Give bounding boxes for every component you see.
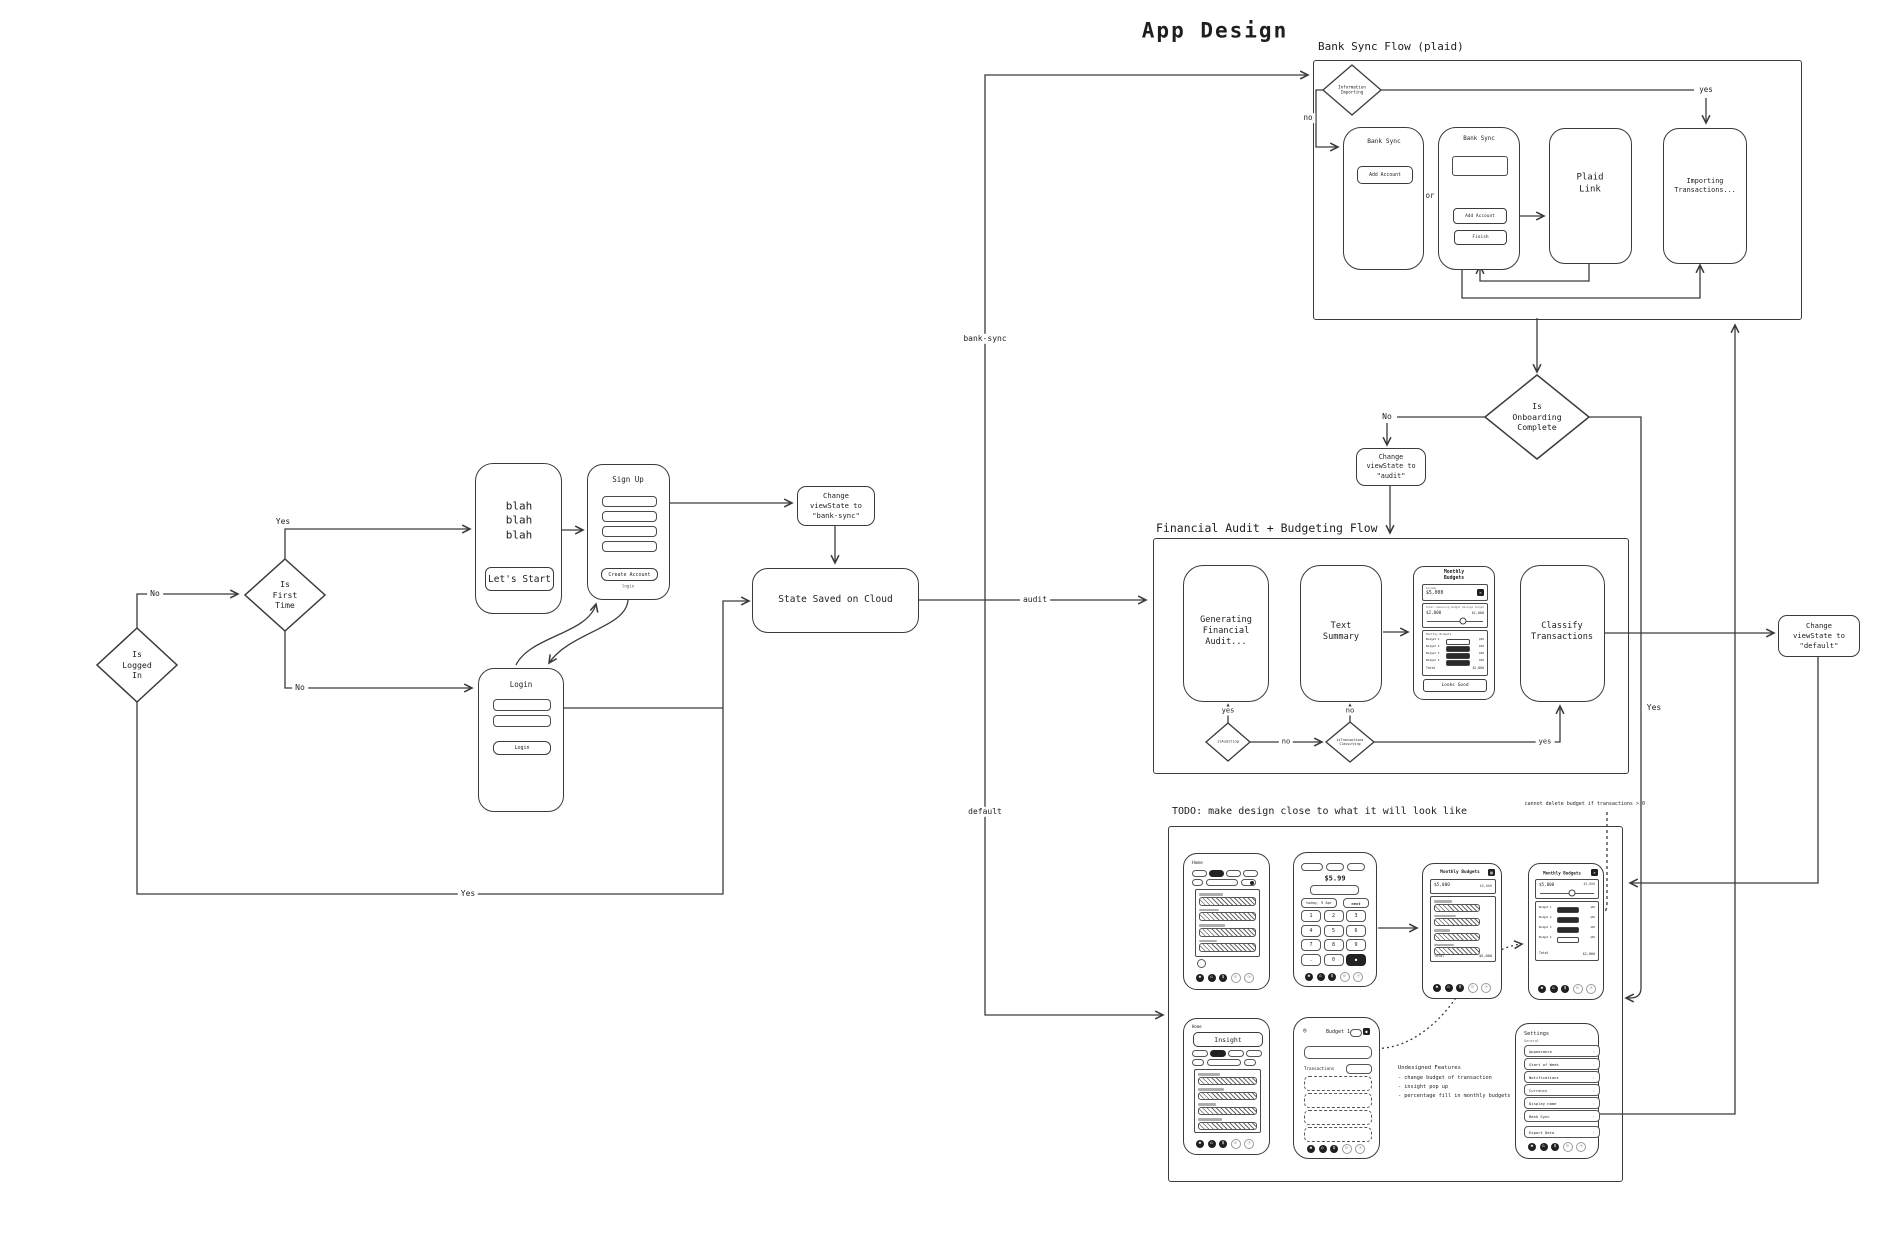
or-label: or bbox=[1425, 191, 1434, 201]
auditing-no-label: no bbox=[1279, 737, 1293, 746]
home-mockup-phone[interactable]: Home ✱ ⌂ $ ⚙ ◔ bbox=[1183, 853, 1270, 990]
total-value: $2,000 bbox=[1583, 952, 1595, 956]
welcome-text: blah blah blah bbox=[506, 500, 533, 543]
is-classifying-label: isTransactions Classifying bbox=[1337, 738, 1364, 746]
list-caption bbox=[1199, 940, 1217, 943]
text-summary-label: Text Summary bbox=[1323, 621, 1359, 643]
banksync-a-title: Bank Sync bbox=[1367, 138, 1401, 146]
insight-pill[interactable]: Insight bbox=[1193, 1032, 1263, 1047]
monthly-title: Monthly Budgets bbox=[1434, 570, 1474, 582]
plaid-link-phone[interactable]: Plaid Link bbox=[1549, 128, 1632, 264]
bottom-nav: ✱ ⌂ $ ⚙ ◔ bbox=[1528, 1142, 1586, 1152]
keypad-pill-row[interactable] bbox=[1301, 863, 1365, 871]
next-pill[interactable]: next bbox=[1343, 898, 1369, 908]
nav-icon-apps[interactable]: ✱ bbox=[1538, 985, 1546, 993]
nav-icon-home[interactable]: ⌂ bbox=[1317, 973, 1325, 981]
nav-icon-settings[interactable]: ⚙ bbox=[1573, 984, 1583, 994]
nav-icon-settings[interactable]: ⚙ bbox=[1342, 1144, 1352, 1154]
category-pill[interactable] bbox=[1326, 863, 1344, 871]
loggedin-yes-label: Yes bbox=[458, 889, 478, 899]
settings-item-label: Start of Week bbox=[1529, 1062, 1559, 1067]
todo-note: cannot delete budget if transactions > 0 bbox=[1500, 801, 1645, 807]
nav-icon-budget[interactable]: $ bbox=[1330, 1145, 1338, 1153]
nav-icon-more[interactable]: ◔ bbox=[1586, 984, 1596, 994]
settings-item-label: Appearance bbox=[1529, 1049, 1552, 1054]
budget-summary-pill[interactable] bbox=[1304, 1046, 1372, 1059]
edit-pill[interactable] bbox=[1350, 1029, 1362, 1037]
budget-row-amount: $50 bbox=[1590, 936, 1595, 939]
income-secondary: $5,000 bbox=[1480, 884, 1492, 888]
budget-row-amount: $50 bbox=[1479, 645, 1484, 648]
insight-mockup-phone[interactable]: Home Insight ✱ ⌂ $ ⚙ ◔ bbox=[1183, 1018, 1270, 1155]
chevron-right-icon: › bbox=[1593, 1101, 1595, 1106]
budget-row-bar bbox=[1557, 937, 1579, 943]
login-field-2[interactable] bbox=[493, 715, 551, 727]
export-icon[interactable]: ▨ bbox=[1488, 869, 1495, 876]
budget-row-bar bbox=[1446, 639, 1470, 645]
remaining-box: Total remaining budget Savings target $2… bbox=[1422, 603, 1488, 628]
key-7[interactable]: 7 bbox=[1301, 939, 1321, 951]
income-box: $5,000 $5,000 bbox=[1430, 879, 1496, 894]
see-all-pill[interactable] bbox=[1346, 1064, 1372, 1074]
chevron-right-icon: › bbox=[1593, 1075, 1595, 1080]
tab-pill[interactable] bbox=[1226, 870, 1241, 877]
back-icon[interactable]: ◎ bbox=[1303, 1027, 1307, 1034]
placeholder-transaction bbox=[1304, 1093, 1372, 1108]
amount-display: $5.99 bbox=[1324, 874, 1345, 883]
welcome-phone[interactable]: blah blah blah Let's Start bbox=[475, 463, 562, 614]
nav-icon-apps[interactable]: ✱ bbox=[1305, 973, 1313, 981]
tab-pill-active[interactable] bbox=[1209, 870, 1224, 877]
transaction-row[interactable] bbox=[1199, 912, 1256, 921]
budget-row-label: Budget 2 bbox=[1426, 645, 1439, 648]
home-filter-row[interactable] bbox=[1192, 879, 1256, 886]
budget-list-box: Budget 1 $50 Budget 2 $50 Budget 3 $50 B… bbox=[1535, 901, 1599, 961]
branch-label-default: default bbox=[965, 807, 1005, 817]
budget-row-bar bbox=[1557, 907, 1579, 913]
total-value: $5,000 bbox=[1479, 954, 1492, 958]
budget-row[interactable] bbox=[1434, 918, 1480, 926]
budget-row-amount: $50 bbox=[1590, 906, 1595, 909]
transaction-row[interactable] bbox=[1199, 897, 1256, 906]
insight-row[interactable] bbox=[1198, 1107, 1257, 1116]
branch-label-banksync: bank-sync bbox=[960, 334, 1009, 344]
nav-icon-more[interactable]: ◔ bbox=[1576, 1142, 1586, 1152]
todo-title: TODO: make design close to what it will … bbox=[1172, 806, 1467, 817]
category-pill[interactable] bbox=[1347, 863, 1365, 871]
signup-field-2[interactable] bbox=[602, 511, 657, 522]
budget-row-bar bbox=[1557, 927, 1579, 933]
settings-section-label: General bbox=[1524, 1039, 1539, 1043]
fab-circle[interactable] bbox=[1197, 959, 1206, 968]
nav-icon-settings[interactable]: ⚙ bbox=[1468, 983, 1478, 993]
loggedin-no-label: No bbox=[147, 589, 163, 599]
branch-label-audit: audit bbox=[1020, 595, 1050, 605]
key-5[interactable]: 5 bbox=[1324, 925, 1344, 937]
tab-pill-active[interactable] bbox=[1210, 1050, 1226, 1057]
banksync-b-account-box[interactable] bbox=[1452, 156, 1508, 176]
banksync-phone-b[interactable]: Bank Sync Add Account Finish bbox=[1438, 127, 1520, 270]
add-account-button-b[interactable]: Add Account bbox=[1453, 208, 1507, 224]
budget-row-label: Budget 3 bbox=[1426, 652, 1439, 655]
settings-item-appearance[interactable]: Appearance› bbox=[1524, 1045, 1600, 1057]
home-label: Home bbox=[1192, 861, 1203, 866]
total-label: Total bbox=[1434, 954, 1444, 958]
importing-label: Importing Transactions... bbox=[1674, 177, 1735, 195]
banksync-yes-label: yes bbox=[1696, 85, 1716, 95]
nav-icon-budget[interactable]: $ bbox=[1561, 985, 1569, 993]
budget-row-bar bbox=[1446, 653, 1470, 659]
financial-flow-title: Financial Audit + Budgeting Flow bbox=[1156, 521, 1378, 535]
tab-pill[interactable] bbox=[1192, 1050, 1208, 1057]
nav-icon-settings[interactable]: ⚙ bbox=[1231, 973, 1241, 983]
tab-pill[interactable] bbox=[1228, 1050, 1244, 1057]
finish-button[interactable]: Finish bbox=[1454, 230, 1507, 245]
signup-title: Sign Up bbox=[612, 475, 644, 485]
firsttime-yes-label: Yes bbox=[273, 517, 293, 527]
settings-mockup-phone[interactable]: Settings General Appearance› Start of We… bbox=[1515, 1023, 1599, 1159]
nav-icon-apps[interactable]: ✱ bbox=[1433, 984, 1441, 992]
key-9[interactable]: 9 bbox=[1346, 939, 1366, 951]
placeholder-transaction bbox=[1304, 1110, 1372, 1125]
list-caption bbox=[1199, 924, 1225, 927]
bottom-nav: ✱ ⌂ $ ⚙ ◔ bbox=[1196, 1139, 1254, 1149]
settings-item-export-data[interactable]: Export Data› bbox=[1524, 1126, 1600, 1138]
nav-icon-apps[interactable]: ✱ bbox=[1196, 974, 1204, 982]
state-saved-node[interactable]: State Saved on Cloud bbox=[752, 568, 919, 633]
insight-row[interactable] bbox=[1198, 1092, 1257, 1101]
undesigned-item: - insight pop up bbox=[1398, 1083, 1528, 1092]
budget-row-label: Budget 1 bbox=[1426, 638, 1439, 641]
date-pill[interactable]: today, 9 Apr bbox=[1301, 898, 1337, 908]
settings-item-start-of-week[interactable]: Start of Week› bbox=[1524, 1058, 1600, 1070]
undesigned-item: - change budget of transaction bbox=[1398, 1074, 1528, 1083]
connector-signup-login[interactable] bbox=[549, 600, 628, 663]
insight-nav-row[interactable] bbox=[1192, 1059, 1256, 1066]
looks-good-button[interactable]: Looks Good bbox=[1423, 679, 1487, 692]
nav-icon-home[interactable]: ⌂ bbox=[1208, 1140, 1216, 1148]
home-tab-row[interactable] bbox=[1192, 870, 1258, 877]
list-caption bbox=[1198, 1103, 1216, 1106]
tab-pill[interactable] bbox=[1246, 1050, 1262, 1057]
bottom-nav: ✱ ⌂ $ ⚙ ◔ bbox=[1307, 1144, 1365, 1154]
key-4[interactable]: 4 bbox=[1301, 925, 1321, 937]
transaction-row[interactable] bbox=[1199, 928, 1256, 937]
prev-pill[interactable] bbox=[1192, 1059, 1204, 1066]
page-title: App Design bbox=[1142, 17, 1288, 44]
budget-row-label: Budget 4 bbox=[1426, 659, 1439, 662]
tab-pill[interactable] bbox=[1192, 870, 1207, 877]
list-caption bbox=[1199, 893, 1223, 896]
key-2[interactable]: 2 bbox=[1324, 910, 1344, 922]
is-auditing-label: isAuditing bbox=[1217, 740, 1239, 745]
add-account-button-a[interactable]: Add Account bbox=[1357, 166, 1413, 184]
income-box: $5,000 $5,000 bbox=[1535, 879, 1599, 899]
budget-slider[interactable] bbox=[1540, 893, 1594, 894]
budget-list-box: Monthly Budgets Budget 1 $50 Budget 2 $5… bbox=[1422, 630, 1488, 676]
budget-list-box: Total $5,000 bbox=[1430, 896, 1496, 962]
income-box: Income $5,000 ✕ bbox=[1422, 584, 1488, 601]
insight-row[interactable] bbox=[1198, 1122, 1257, 1131]
slider-knob[interactable] bbox=[1569, 890, 1576, 897]
banksync-flow-title: Bank Sync Flow (plaid) bbox=[1318, 40, 1464, 53]
settings-title: Settings bbox=[1524, 1031, 1549, 1037]
insight-list[interactable] bbox=[1194, 1069, 1261, 1133]
key-6[interactable]: 6 bbox=[1346, 925, 1366, 937]
signup-phone[interactable]: Sign Up Create Account login bbox=[587, 464, 670, 600]
bottom-nav: ✱ ⌂ $ ⚙ ◔ bbox=[1305, 972, 1363, 982]
monthly-budgets-phone[interactable]: Monthly Budgets Income $5,000 ✕ Total re… bbox=[1413, 566, 1495, 700]
nav-icon-budget[interactable]: $ bbox=[1219, 1140, 1227, 1148]
connector-default-return[interactable] bbox=[1630, 655, 1818, 883]
budgets-mockup-phone-1[interactable]: Monthly Budgets ▨ $5,000 $5,000 Total $5… bbox=[1422, 863, 1502, 999]
savings-value: $1,000 bbox=[1472, 611, 1484, 615]
keypad-mockup-phone[interactable]: $5.99 today, 9 Apr next 1 2 3 4 5 6 7 8 … bbox=[1293, 852, 1377, 987]
settings-item-bank-sync[interactable]: Bank Sync› bbox=[1524, 1110, 1600, 1122]
placeholder-transaction bbox=[1304, 1127, 1372, 1142]
category-pill[interactable] bbox=[1301, 863, 1323, 871]
key-8[interactable]: 8 bbox=[1324, 939, 1344, 951]
generating-audit-phone[interactable]: Generating Financial Audit... bbox=[1183, 565, 1269, 702]
is-first-time-label: Is First Time bbox=[273, 579, 298, 611]
bottom-nav: ✱ ⌂ $ ⚙ ◔ bbox=[1433, 983, 1491, 993]
generating-audit-label: Generating Financial Audit... bbox=[1200, 615, 1252, 649]
nav-icon-budget[interactable]: $ bbox=[1456, 984, 1464, 992]
nav-icon-more[interactable]: ◔ bbox=[1353, 972, 1363, 982]
connector-firsttime-yes[interactable] bbox=[285, 529, 470, 559]
budget-row-amount: $50 bbox=[1479, 652, 1484, 655]
nav-icon-apps[interactable]: ✱ bbox=[1196, 1140, 1204, 1148]
settings-item-label: Bank Sync bbox=[1529, 1114, 1550, 1119]
date-row[interactable]: today, 9 Apr next bbox=[1301, 898, 1369, 908]
nav-icon-more[interactable]: ◔ bbox=[1481, 983, 1491, 993]
undesigned-features-note: Undesigned Features - change budget of t… bbox=[1398, 1064, 1528, 1100]
key-dot[interactable]: . bbox=[1301, 954, 1321, 966]
numeric-keypad[interactable]: 1 2 3 4 5 6 7 8 9 . 0 ● bbox=[1301, 910, 1366, 966]
nav-icon-settings[interactable]: ⚙ bbox=[1340, 972, 1350, 982]
remaining-value: $2,000 bbox=[1426, 610, 1441, 615]
nav-icon-home[interactable]: ⌂ bbox=[1445, 984, 1453, 992]
signup-field-1[interactable] bbox=[602, 496, 657, 507]
key-1[interactable]: 1 bbox=[1301, 910, 1321, 922]
chevron-right-icon: › bbox=[1593, 1130, 1595, 1135]
next-pill[interactable] bbox=[1244, 1059, 1256, 1066]
chevron-right-icon: › bbox=[1593, 1062, 1595, 1067]
onboarding-no-label: No bbox=[1379, 412, 1395, 422]
classifying-no-label: no bbox=[1343, 706, 1357, 715]
insight-row[interactable] bbox=[1198, 1077, 1257, 1086]
nav-icon-budget[interactable]: $ bbox=[1219, 974, 1227, 982]
connector-state-default[interactable] bbox=[985, 600, 1163, 1015]
settings-item-notifications[interactable]: Notifications› bbox=[1524, 1071, 1600, 1083]
bottom-nav: ✱ ⌂ $ ⚙ ◔ bbox=[1196, 973, 1254, 983]
total-label: Total bbox=[1539, 952, 1549, 956]
remaining-label: Total remaining budget bbox=[1426, 606, 1460, 609]
nav-icon-apps[interactable]: ✱ bbox=[1307, 1145, 1315, 1153]
banksync-phone-a[interactable]: Bank Sync Add Account bbox=[1343, 127, 1424, 270]
search-pill[interactable] bbox=[1206, 879, 1238, 886]
transactions-label: Transactions bbox=[1304, 1066, 1334, 1071]
budget-row-amount: $50 bbox=[1590, 916, 1595, 919]
fund-pill[interactable] bbox=[1310, 885, 1359, 895]
period-pill[interactable] bbox=[1207, 1059, 1241, 1066]
key-0[interactable]: 0 bbox=[1324, 954, 1344, 966]
list-caption bbox=[1434, 915, 1456, 918]
banksync-no-label: no bbox=[1300, 113, 1315, 123]
budget-row-label: Budget 2 bbox=[1539, 916, 1552, 919]
budget-row-label: Budget 1 bbox=[1539, 906, 1552, 909]
budget-row-amount: $50 bbox=[1590, 926, 1595, 929]
list-caption bbox=[1199, 909, 1219, 912]
nav-icon-home[interactable]: ⌂ bbox=[1208, 974, 1216, 982]
budget-row-bar bbox=[1557, 917, 1579, 923]
settings-item-label: Export Data bbox=[1529, 1130, 1554, 1135]
list-caption bbox=[1434, 944, 1454, 947]
signup-field-3[interactable] bbox=[602, 526, 657, 537]
income-label: Income bbox=[1426, 587, 1436, 590]
text-summary-phone[interactable]: Text Summary bbox=[1300, 565, 1382, 702]
login-link[interactable]: login bbox=[622, 583, 634, 588]
nav-icon-home[interactable]: ⌂ bbox=[1550, 985, 1558, 993]
plaid-link-label: Plaid Link bbox=[1570, 172, 1611, 195]
signup-field-4[interactable] bbox=[602, 541, 657, 552]
change-viewstate-audit[interactable]: Change viewState to "audit" bbox=[1356, 448, 1426, 486]
budgets-mockup-phone-2[interactable]: Monthly Budgets ✕ $5,000 $5,000 Budget 1… bbox=[1528, 863, 1604, 1000]
budget-row-label: Budget 4 bbox=[1539, 936, 1552, 939]
income-value: $5,000 bbox=[1539, 882, 1554, 887]
total-label: Total bbox=[1426, 667, 1436, 671]
connector-firsttime-no[interactable] bbox=[285, 631, 472, 688]
connector-loggedin-yes[interactable] bbox=[137, 601, 749, 894]
change-viewstate-default[interactable]: Change viewState to "default" bbox=[1778, 615, 1860, 657]
nav-icon-home[interactable]: ⌂ bbox=[1319, 1145, 1327, 1153]
onboarding-question: Is Onboarding Complete bbox=[1512, 401, 1561, 433]
bottom-nav: ✱ ⌂ $ ⚙ ◔ bbox=[1538, 984, 1596, 994]
login-button[interactable]: Login bbox=[493, 741, 551, 755]
budget-detail-phone[interactable]: ◎ Budget 1 ● Transactions ✱ ⌂ $ ⚙ ◔ bbox=[1293, 1017, 1380, 1159]
insight-home-label: Home bbox=[1192, 1025, 1202, 1030]
login-title: Login bbox=[510, 680, 533, 690]
list-caption bbox=[1198, 1118, 1222, 1121]
nav-icon-more[interactable]: ◔ bbox=[1244, 1139, 1254, 1149]
savings-label: Savings target bbox=[1462, 606, 1484, 609]
nav-icon-budget[interactable]: $ bbox=[1551, 1143, 1559, 1151]
toggle-dot bbox=[1250, 881, 1254, 885]
create-account-button[interactable]: Create Account bbox=[601, 568, 658, 581]
income-value: $5,000 bbox=[1426, 591, 1443, 597]
transaction-row[interactable] bbox=[1199, 943, 1256, 952]
login-phone[interactable]: Login Login bbox=[478, 668, 564, 812]
undesigned-title: Undesigned Features bbox=[1398, 1064, 1528, 1074]
budget-row-amount: $50 bbox=[1479, 659, 1484, 662]
close-icon[interactable]: ✕ bbox=[1591, 869, 1598, 876]
list-caption bbox=[1434, 900, 1452, 903]
income-value: $5,000 bbox=[1434, 883, 1450, 888]
insight-tab-row[interactable] bbox=[1192, 1050, 1262, 1057]
slider-knob[interactable] bbox=[1460, 618, 1467, 625]
close-icon[interactable]: ✕ bbox=[1477, 589, 1484, 596]
transaction-list[interactable] bbox=[1195, 889, 1260, 957]
classify-phone[interactable]: Classify Transactions bbox=[1520, 565, 1605, 702]
classify-label: Classify Transactions bbox=[1531, 621, 1593, 643]
budgets1-title: Monthly Budgets bbox=[1440, 870, 1480, 876]
budget-row-bar bbox=[1446, 646, 1470, 652]
total-value: $2,000 bbox=[1472, 667, 1484, 671]
list-caption bbox=[1434, 929, 1450, 932]
nav-icon-home[interactable]: ⌂ bbox=[1540, 1143, 1548, 1151]
settings-item-label: Display name bbox=[1529, 1101, 1556, 1106]
budget-detail-title: Budget 1 bbox=[1326, 1029, 1350, 1036]
list-caption bbox=[1198, 1088, 1224, 1091]
login-field-1[interactable] bbox=[493, 699, 551, 711]
auditing-yes-label: yes bbox=[1219, 706, 1238, 715]
placeholder-transaction bbox=[1304, 1076, 1372, 1091]
nav-icon-budget[interactable]: $ bbox=[1328, 973, 1336, 981]
information-importing-label: Information Importing bbox=[1338, 85, 1366, 96]
change-viewstate-banksync[interactable]: Change viewState to "bank-sync" bbox=[797, 486, 875, 526]
key-3[interactable]: 3 bbox=[1346, 910, 1366, 922]
budget-row-amount: $50 bbox=[1479, 638, 1484, 641]
lets-start-button[interactable]: Let's Start bbox=[485, 567, 554, 591]
tab-pill[interactable] bbox=[1243, 870, 1258, 877]
nav-icon-more[interactable]: ◔ bbox=[1355, 1144, 1365, 1154]
toggle-pill[interactable] bbox=[1241, 879, 1256, 886]
is-logged-in-label: Is Logged In bbox=[122, 649, 152, 681]
importing-phone[interactable]: Importing Transactions... bbox=[1663, 128, 1747, 264]
filter-pill[interactable] bbox=[1192, 879, 1203, 886]
onboarding-yes-label: Yes bbox=[1644, 703, 1664, 713]
connector-loggedin-no[interactable] bbox=[137, 594, 238, 629]
undesigned-item: - percentage fill in monthly budgets bbox=[1398, 1092, 1528, 1101]
budget-row-label: Budget 3 bbox=[1539, 926, 1552, 929]
settings-item-currency[interactable]: Currency› bbox=[1524, 1084, 1600, 1096]
budget-row[interactable] bbox=[1434, 933, 1480, 941]
chevron-right-icon: › bbox=[1593, 1114, 1595, 1119]
classifying-yes-label: yes bbox=[1536, 737, 1555, 746]
settings-item-label: Currency bbox=[1529, 1088, 1547, 1093]
dot-icon[interactable]: ● bbox=[1363, 1028, 1370, 1035]
chevron-right-icon: › bbox=[1593, 1088, 1595, 1093]
settings-item-label: Notifications bbox=[1529, 1075, 1559, 1080]
budgets2-title: Monthly Budgets bbox=[1543, 870, 1581, 875]
whiteboard-canvas[interactable]: App Design Is Logged In No Yes Is First … bbox=[0, 0, 1890, 1257]
key-confirm[interactable]: ● bbox=[1346, 954, 1366, 966]
budget-list-label: Monthly Budgets bbox=[1426, 633, 1451, 636]
banksync-b-title: Bank Sync bbox=[1463, 136, 1494, 144]
income-secondary: $5,000 bbox=[1583, 883, 1595, 887]
budget-row[interactable] bbox=[1434, 904, 1480, 912]
chevron-right-icon: › bbox=[1593, 1049, 1595, 1054]
budget-slider[interactable] bbox=[1427, 621, 1483, 622]
nav-icon-settings[interactable]: ⚙ bbox=[1563, 1142, 1573, 1152]
settings-item-display-name[interactable]: Display name› bbox=[1524, 1097, 1600, 1109]
list-caption bbox=[1198, 1073, 1220, 1076]
budget-row-bar bbox=[1446, 660, 1470, 666]
nav-icon-more[interactable]: ◔ bbox=[1244, 973, 1254, 983]
firsttime-no-label: No bbox=[292, 683, 308, 693]
nav-icon-apps[interactable]: ✱ bbox=[1528, 1143, 1536, 1151]
nav-icon-settings[interactable]: ⚙ bbox=[1231, 1139, 1241, 1149]
